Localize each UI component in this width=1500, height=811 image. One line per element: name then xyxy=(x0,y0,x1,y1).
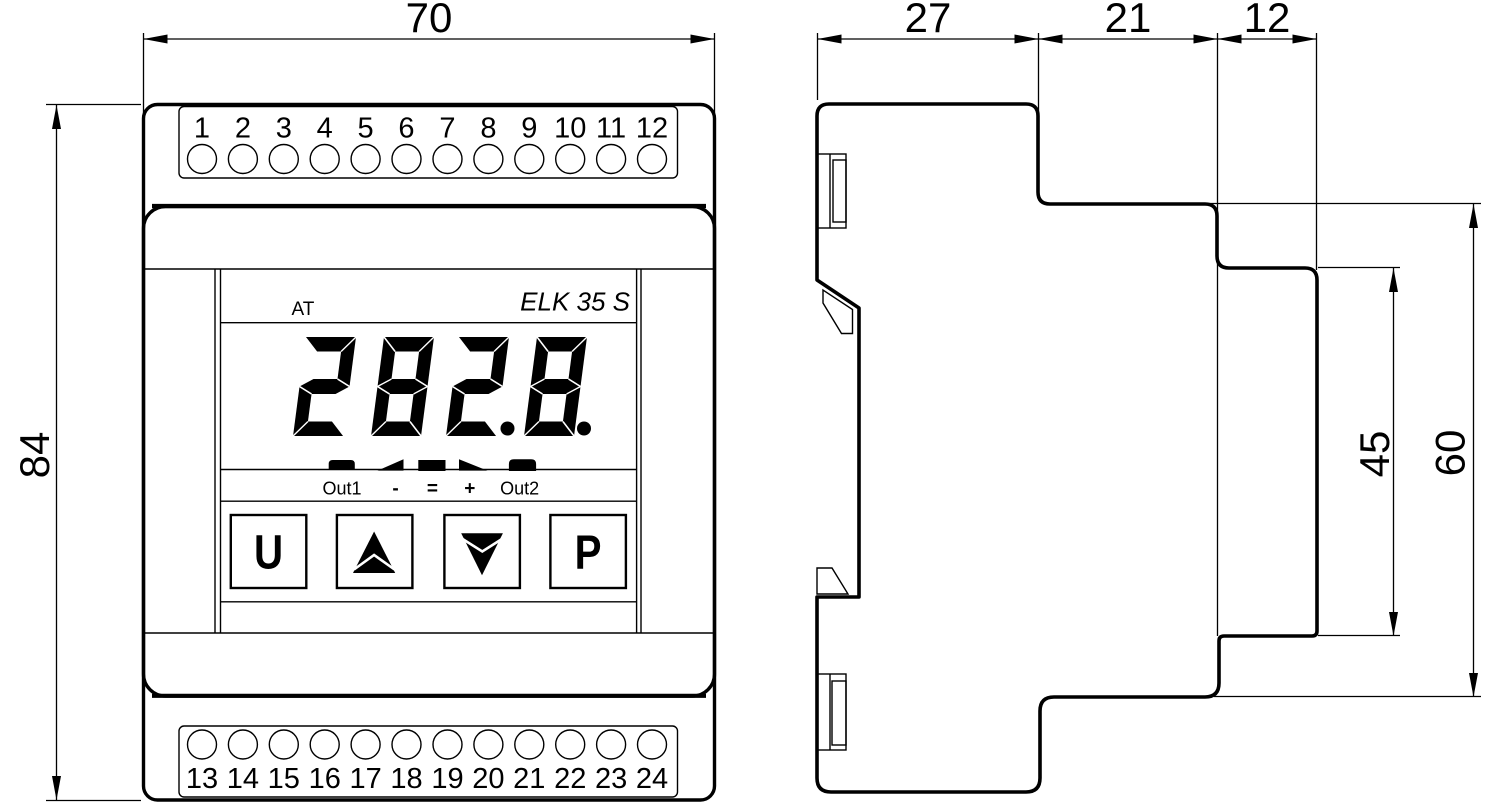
svg-text:=: = xyxy=(427,479,438,500)
svg-text:21: 21 xyxy=(513,763,545,795)
svg-text:Out2: Out2 xyxy=(500,479,539,499)
svg-text:2: 2 xyxy=(235,113,251,145)
svg-text:18: 18 xyxy=(390,763,422,795)
svg-text:5: 5 xyxy=(358,113,374,145)
svg-text:17: 17 xyxy=(349,763,381,795)
svg-text:9: 9 xyxy=(521,113,537,145)
svg-text:22: 22 xyxy=(554,763,586,795)
svg-text:27: 27 xyxy=(905,0,952,41)
svg-text:3: 3 xyxy=(276,113,292,145)
svg-text:16: 16 xyxy=(309,763,341,795)
svg-text:21: 21 xyxy=(1105,0,1152,41)
svg-text:7: 7 xyxy=(439,113,455,145)
svg-text:23: 23 xyxy=(595,763,627,795)
svg-text:10: 10 xyxy=(554,113,586,145)
svg-text:60: 60 xyxy=(1427,430,1474,477)
svg-text:84: 84 xyxy=(11,432,58,479)
svg-text:-: - xyxy=(392,479,398,500)
svg-text:70: 70 xyxy=(406,0,453,41)
svg-text:14: 14 xyxy=(227,763,259,795)
svg-text:AT: AT xyxy=(292,299,315,320)
svg-text:P: P xyxy=(575,526,602,579)
svg-text:15: 15 xyxy=(268,763,300,795)
svg-text:ELK 35 S: ELK 35 S xyxy=(520,287,631,317)
svg-text:Out1: Out1 xyxy=(322,479,361,499)
svg-text:24: 24 xyxy=(636,763,668,795)
svg-text:19: 19 xyxy=(431,763,463,795)
svg-text:12: 12 xyxy=(636,113,668,145)
svg-text:13: 13 xyxy=(186,763,218,795)
svg-text:8: 8 xyxy=(480,113,496,145)
svg-text:12: 12 xyxy=(1244,0,1291,41)
svg-text:45: 45 xyxy=(1351,431,1398,478)
svg-text:11: 11 xyxy=(596,113,626,145)
svg-text:20: 20 xyxy=(472,763,504,795)
svg-text:1: 1 xyxy=(194,113,210,145)
svg-text:4: 4 xyxy=(317,113,333,145)
svg-text:6: 6 xyxy=(398,113,414,145)
svg-text:+: + xyxy=(464,479,475,500)
svg-text:U: U xyxy=(254,526,283,579)
